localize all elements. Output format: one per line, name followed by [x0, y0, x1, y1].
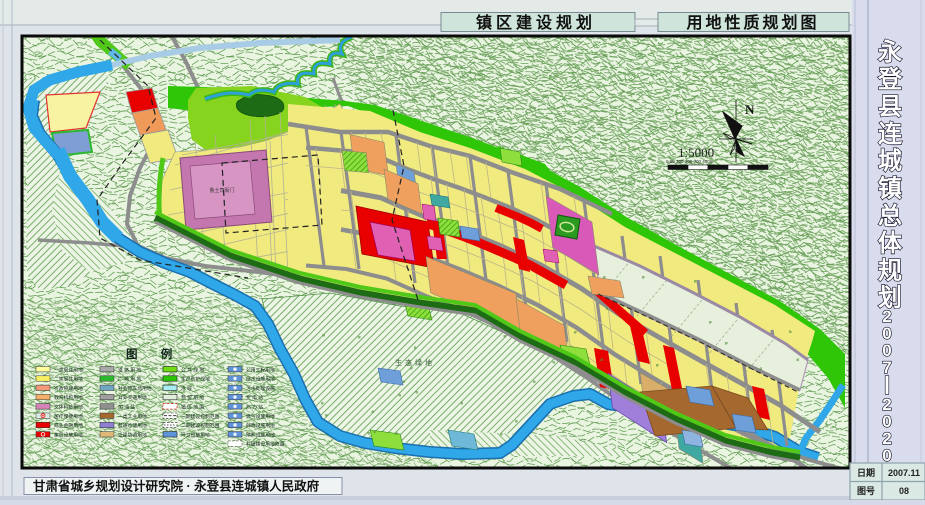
svg-text:一类工业用地: 一类工业用地	[118, 413, 147, 420]
svg-text:水 域: 水 域	[181, 385, 192, 392]
svg-text:教育机构用地: 教育机构用地	[54, 394, 83, 401]
svg-text:N: N	[745, 102, 755, 117]
svg-text:二类居住用地: 二类居住用地	[54, 376, 83, 383]
svg-text:医疗保健用地: 医疗保健用地	[54, 413, 83, 420]
svg-text:镇: 镇	[878, 176, 902, 203]
svg-text:0 50 100 200: 0 50 100 200 300 400m	[666, 159, 714, 164]
svg-text:城: 城	[878, 147, 902, 175]
svg-text:甘肃省城乡规划设计研究院 · 永登县连城镇人民政府: 甘肃省城乡规划设计研究院 · 永登县连城镇人民政府	[33, 479, 320, 494]
svg-text:1:5000: 1:5000	[678, 145, 714, 160]
svg-text:社会停车场用地: 社会停车场用地	[118, 385, 152, 392]
svg-text:公用工程用地: 公用工程用地	[246, 366, 275, 373]
svg-text:生产防护绿地: 生产防护绿地	[181, 376, 210, 383]
svg-text:连: 连	[878, 120, 903, 148]
svg-text:燃气设施用地: 燃气设施用地	[246, 413, 275, 420]
svg-text:热 力 站: 热 力 站	[246, 404, 263, 411]
svg-text:加 油 站: 加 油 站	[118, 404, 135, 411]
svg-text:用地性质规划图: 用地性质规划图	[686, 13, 819, 32]
svg-text:日期: 日期	[857, 467, 875, 478]
svg-text:广 场 用 地: 广 场 用 地	[118, 376, 141, 383]
svg-text:规: 规	[878, 257, 902, 284]
svg-text:变 电 站: 变 电 站	[246, 394, 263, 401]
svg-text:环卫设施用地: 环卫设施用地	[181, 431, 210, 438]
svg-text:体: 体	[878, 230, 903, 257]
svg-text:道 路 用 地: 道 路 用 地	[118, 366, 141, 373]
svg-text:登: 登	[877, 66, 903, 93]
svg-text:图 例: 图 例	[126, 347, 182, 361]
svg-text:行政管理用地: 行政管理用地	[54, 385, 83, 392]
svg-text:县: 县	[878, 94, 902, 121]
svg-text:预 留 用 地: 预 留 用 地	[181, 394, 204, 401]
svg-text:图号: 图号	[857, 486, 875, 496]
svg-text:对外交通用地: 对外交通用地	[118, 394, 147, 401]
svg-text:08: 08	[899, 486, 909, 496]
svg-text:镇区建设规划: 镇区建设规划	[476, 13, 596, 32]
svg-text:商业金融用地: 商业金融用地	[54, 422, 83, 429]
svg-text:污水处理设施: 污水处理设施	[246, 385, 275, 392]
svg-text:一期建设控制范围: 一期建设控制范围	[181, 413, 220, 420]
svg-text:公 共 绿 地: 公 共 绿 地	[181, 366, 204, 373]
svg-text:总: 总	[878, 202, 902, 230]
svg-text:给水设施用地: 给水设施用地	[246, 376, 275, 383]
svg-text:镇 区 范 围: 镇 区 范 围	[181, 404, 204, 411]
svg-text:鲁土司衙门: 鲁土司衙门	[209, 187, 234, 194]
svg-text:一类居住用地: 一类居住用地	[54, 366, 83, 373]
svg-text:集贸设施用地: 集贸设施用地	[54, 431, 83, 438]
svg-text:村镇建设用地范围: 村镇建设用地范围	[246, 441, 285, 448]
svg-text:二期建设控制范围: 二期建设控制范围	[181, 422, 220, 429]
svg-text:7: 7	[882, 358, 891, 377]
svg-text:0: 0	[882, 446, 891, 465]
svg-text:生态绿地: 生态绿地	[395, 358, 435, 367]
svg-text:2007.11: 2007.11	[888, 468, 920, 478]
svg-text:永: 永	[878, 39, 902, 66]
svg-text:迁建协调用地: 迁建协调用地	[118, 431, 147, 438]
svg-text:殡葬设施用地: 殡葬设施用地	[246, 431, 275, 438]
svg-text:文体科技用地: 文体科技用地	[54, 404, 83, 411]
svg-text:邮政设施用地: 邮政设施用地	[246, 422, 275, 429]
svg-text:普通仓储用地: 普通仓储用地	[118, 422, 147, 429]
